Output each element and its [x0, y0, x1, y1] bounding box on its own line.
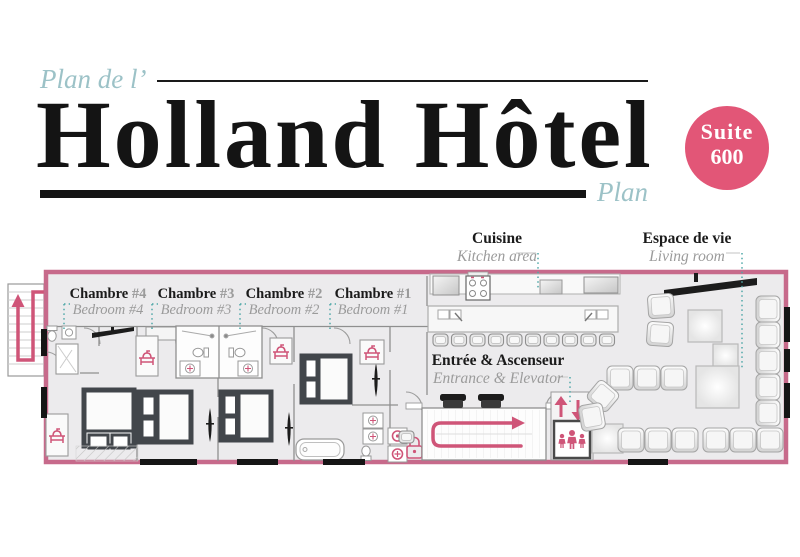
bedroom3-label: Chambre #3 Bedroom #3 — [150, 286, 242, 318]
kitchen-label-fr: Cuisine — [432, 230, 562, 248]
stove-icon — [466, 272, 490, 300]
living-room-label-fr: Espace de vie — [617, 230, 757, 248]
kitchen-label: Cuisine Kitchen area — [432, 230, 562, 266]
toilet-icon — [361, 446, 371, 461]
bedroom1-label-en: Bedroom #1 — [327, 302, 419, 318]
bedroom4-label-number: #4 — [132, 286, 147, 302]
bathroom-shared — [176, 326, 262, 378]
plan-corner-label: Plan — [498, 177, 648, 208]
sofa-right-wall — [756, 296, 780, 426]
suite-badge-number: 600 — [685, 144, 769, 170]
bedroom3-label-number: #3 — [220, 286, 235, 302]
bed-bedroom1 — [302, 356, 350, 402]
toilet-icon — [47, 326, 57, 341]
staircase — [8, 284, 46, 376]
suite-badge-word: Suite — [685, 120, 769, 144]
bedroom2-label-number: #2 — [308, 286, 323, 302]
bedroom2-label: Chambre #2 Bedroom #2 — [238, 286, 330, 318]
double-washbasin-icon — [363, 413, 383, 444]
bedroom2-label-fr: Chambre — [246, 286, 305, 302]
kitchen-island — [428, 306, 618, 332]
shower-icon — [56, 344, 78, 374]
rug — [76, 446, 138, 461]
bedroom1-label-fr: Chambre — [335, 286, 394, 302]
entrance-label-fr: Entrée & Ascenseur — [412, 352, 584, 370]
bedroom1-label-number: #1 — [397, 286, 412, 302]
microwave-icon — [540, 280, 562, 294]
side-chair — [399, 431, 414, 443]
bed-bedroom3 — [139, 392, 191, 442]
bed-bedroom2 — [221, 392, 271, 440]
entrance-hall — [422, 408, 546, 460]
suite-badge: Suite 600 — [685, 106, 769, 190]
hotel-title: Holland Hôtel — [36, 87, 654, 183]
living-room-label-en: Living room — [617, 248, 757, 266]
living-room-label: Espace de vie Living room — [617, 230, 757, 266]
bedroom3-label-en: Bedroom #3 — [150, 302, 242, 318]
entrance-label-en: Entrance & Elevator — [412, 370, 584, 388]
floor-plan-poster: Plan de l’ Holland Hôtel Plan Suite 600 … — [0, 0, 800, 557]
fridge-icon — [433, 276, 459, 295]
bedroom1-label: Chambre #1 Bedroom #1 — [327, 286, 419, 318]
bedroom4-label-en: Bedroom #4 — [62, 302, 154, 318]
bedroom4-label-fr: Chambre — [70, 286, 129, 302]
entrance-label: Entrée & Ascenseur Entrance & Elevator — [412, 352, 584, 388]
counter-appliance — [584, 277, 618, 293]
bedroom4-label: Chambre #4 Bedroom #4 — [62, 286, 154, 318]
bedroom2-label-en: Bedroom #2 — [238, 302, 330, 318]
bedroom3-label-fr: Chambre — [158, 286, 217, 302]
kitchen-label-en: Kitchen area — [432, 248, 562, 266]
bed-bedroom4 — [84, 390, 134, 448]
bathtub-icon — [296, 439, 344, 460]
